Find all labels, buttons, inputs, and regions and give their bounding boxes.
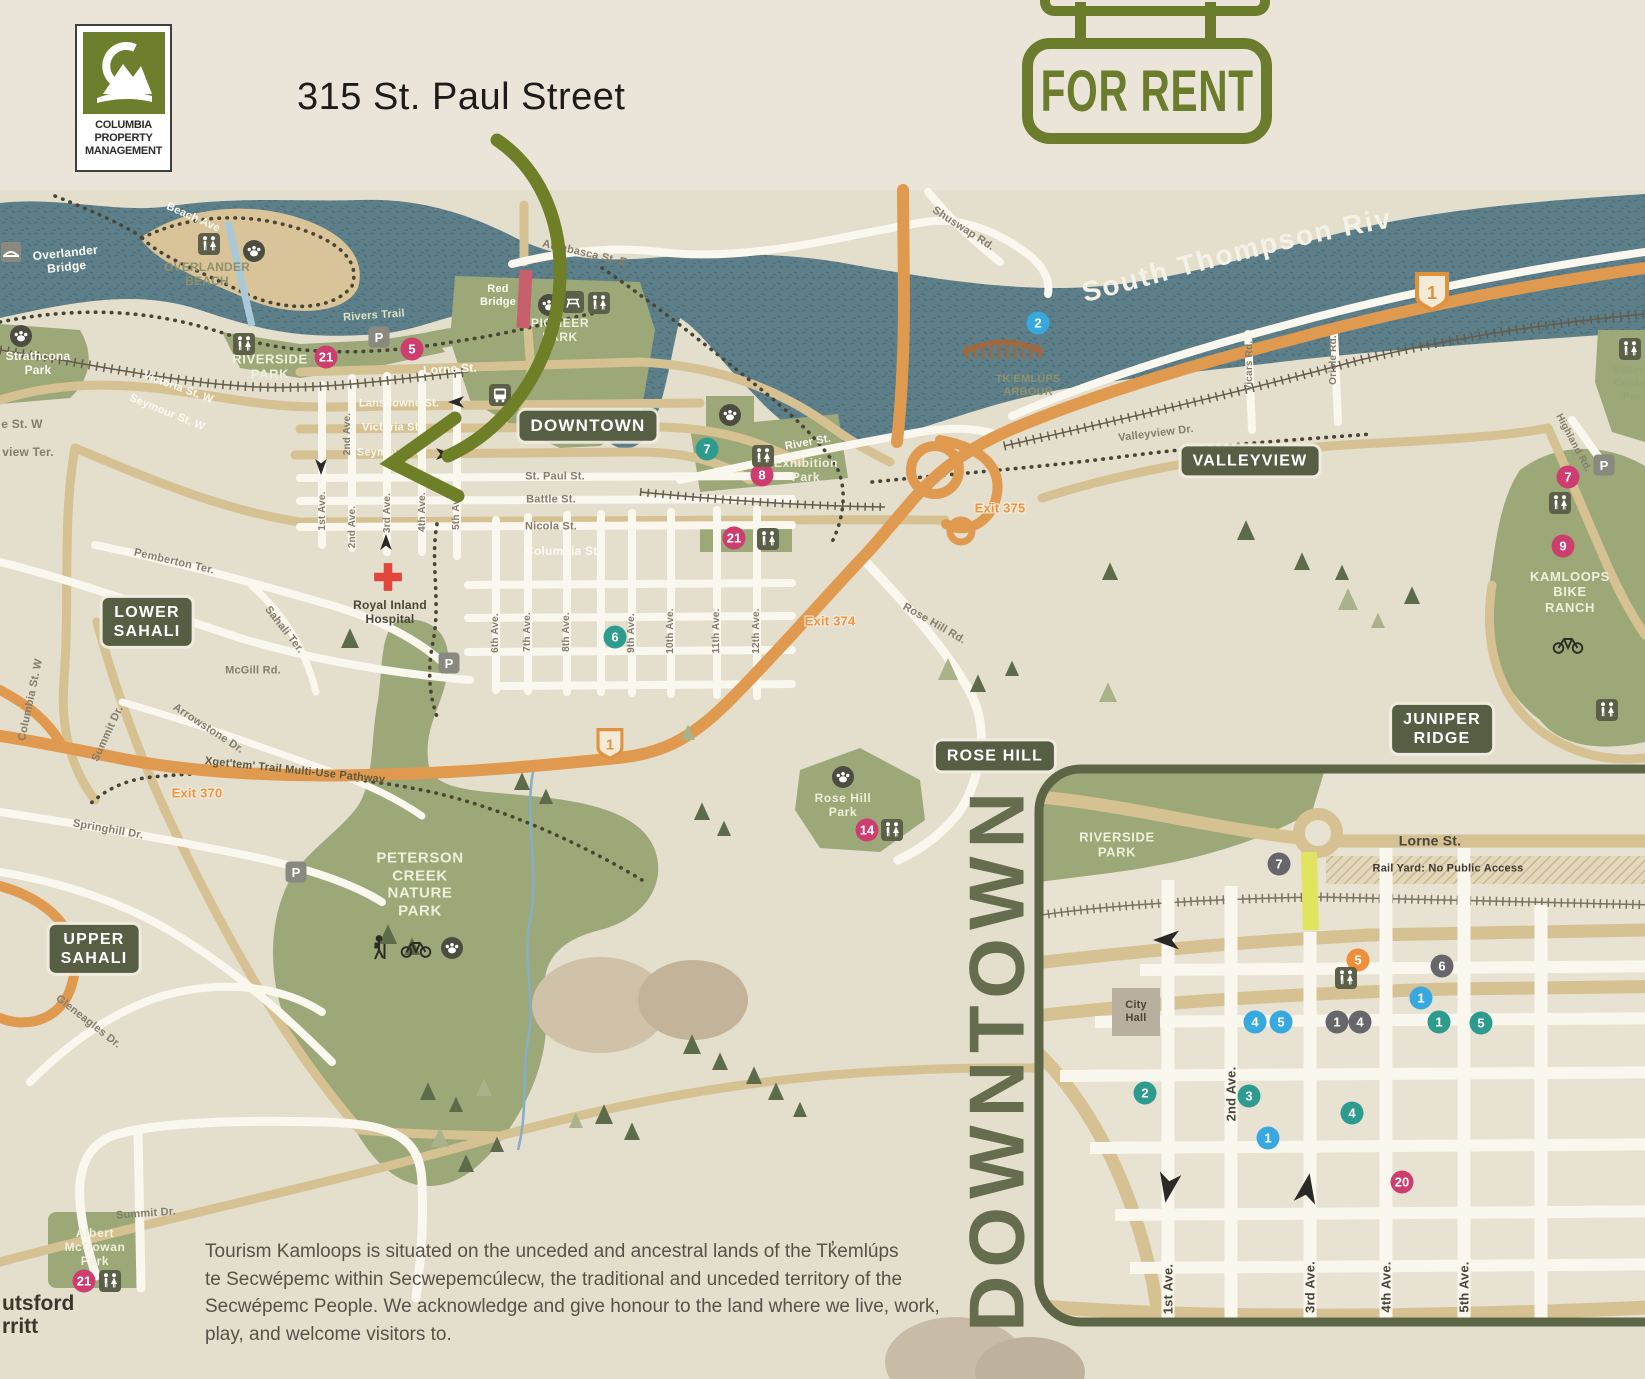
region-badge: VALLEYVIEW bbox=[1182, 446, 1319, 475]
land-acknowledgment: Tourism Kamloops is situated on the unce… bbox=[205, 1238, 940, 1348]
map-label: Pemberton Ter. bbox=[133, 546, 216, 577]
restroom-icon bbox=[1619, 338, 1641, 360]
map-label: view Ter. bbox=[2, 445, 54, 459]
logo-text-line1: COLUMBIA bbox=[77, 119, 170, 132]
map-label: PIONEER PARK bbox=[531, 316, 589, 344]
numbered-marker: 5 bbox=[401, 338, 424, 361]
paw-icon bbox=[441, 937, 464, 960]
direction-arrow bbox=[436, 446, 452, 462]
map-label: RIVERSIDE PARK bbox=[232, 352, 307, 383]
map-label: 3rd Ave. bbox=[382, 493, 394, 533]
map-label: Xget'tem' Trail Multi-Use Pathway bbox=[204, 755, 386, 787]
numbered-marker: 4 bbox=[1244, 1011, 1267, 1034]
numbered-marker: 5 bbox=[1470, 1012, 1493, 1035]
numbered-marker: 20 bbox=[1391, 1171, 1414, 1194]
restroom-icon bbox=[1549, 492, 1571, 514]
map-label: Summit Dr. bbox=[89, 704, 126, 764]
map-label: Rivers Trail bbox=[343, 307, 405, 324]
map-label: e St. W bbox=[1, 417, 42, 431]
map-label: Strathcona Park bbox=[6, 349, 71, 377]
map-label: Gleneagles Dr. bbox=[53, 992, 123, 1051]
map-label: Vicars Rd. bbox=[1244, 341, 1256, 392]
bus-icon bbox=[489, 384, 511, 406]
map-label: Valleyview Dr. bbox=[1118, 423, 1195, 445]
direction-arrow bbox=[313, 459, 329, 475]
map-overlay: Overlander BridgeBeach AveOVERLANDER BEA… bbox=[0, 0, 1645, 1379]
map-label: 5th Ave. bbox=[451, 490, 463, 530]
numbered-marker: 4 bbox=[1341, 1102, 1364, 1125]
map-label: River St. bbox=[784, 433, 832, 454]
map-label: Nicola St. bbox=[525, 521, 577, 534]
map-label: Exhibition Park bbox=[774, 456, 838, 484]
map-label: 1st Ave. bbox=[317, 491, 329, 530]
columbia-property-management-logo: COLUMBIA PROPERTY MANAGEMENT bbox=[75, 24, 172, 172]
map-label: Athabasca St. E. bbox=[541, 238, 631, 271]
region-badge: JUNIPER RIDGE bbox=[1392, 705, 1492, 753]
paw-icon bbox=[243, 240, 266, 263]
map-label: 9th Ave. bbox=[626, 613, 638, 653]
map-label: 2nd Ave. bbox=[1223, 1067, 1238, 1122]
numbered-marker: 6 bbox=[1431, 955, 1454, 978]
map-label: Oriole Rd. bbox=[1328, 335, 1340, 385]
svg-text:P: P bbox=[445, 656, 454, 671]
map-label: Royal Inland Hospital bbox=[353, 598, 427, 626]
map-label: Lorne St. bbox=[1399, 833, 1461, 850]
region-badge: ROSE HILL bbox=[936, 741, 1054, 770]
map-label: City Hall bbox=[1125, 999, 1147, 1025]
map-label: Arrowstone Dr. bbox=[170, 701, 246, 756]
region-badge: DOWNTOWN bbox=[519, 411, 656, 441]
numbered-marker: 21 bbox=[723, 527, 746, 550]
numbered-marker: 21 bbox=[315, 346, 338, 369]
bridge-icon bbox=[1, 242, 21, 262]
map-label: PETERSON CREEK NATURE PARK bbox=[376, 850, 463, 921]
numbered-marker: 9 bbox=[1552, 535, 1575, 558]
map-label: Victoria St. bbox=[362, 422, 422, 435]
map-label: 7th Ave. bbox=[522, 612, 534, 652]
map-label: Exit 374 bbox=[805, 613, 856, 628]
map-label: 2nd Ave. bbox=[347, 506, 359, 549]
direction-arrow bbox=[378, 534, 394, 550]
numbered-marker: 7 bbox=[1557, 466, 1580, 489]
numbered-marker: 1 bbox=[1428, 1011, 1451, 1034]
map-label: Red Bridge bbox=[480, 283, 516, 309]
map-label: 4th Ave. bbox=[417, 492, 429, 532]
parking-icon: P bbox=[286, 862, 307, 883]
bike-icon bbox=[400, 938, 432, 959]
map-label: Battle St. bbox=[526, 494, 576, 507]
map-label: Sahali Ter. bbox=[262, 604, 307, 656]
restroom-icon bbox=[1335, 967, 1357, 989]
map-label: Valleyv Center Par bbox=[1613, 365, 1645, 404]
map-label: Exit 375 bbox=[975, 500, 1026, 515]
map-label: Lorne St. bbox=[423, 361, 477, 378]
region-badge: UPPER SAHALI bbox=[50, 925, 139, 973]
numbered-marker: 3 bbox=[1238, 1085, 1261, 1108]
map-label: Rail Yard: No Public Access bbox=[1373, 863, 1524, 876]
region-badge: LOWER SAHALI bbox=[103, 598, 192, 646]
highway-1-shield: 1 bbox=[1415, 272, 1449, 312]
numbered-marker: 6 bbox=[604, 626, 627, 649]
svg-text:1: 1 bbox=[606, 738, 614, 754]
map-label: McGill Rd. bbox=[225, 665, 281, 678]
parking-icon: P bbox=[1594, 455, 1615, 476]
direction-arrow bbox=[1151, 1171, 1186, 1206]
map-label: 11th Ave. bbox=[711, 609, 723, 654]
numbered-marker: 4 bbox=[1349, 1011, 1372, 1034]
map-label: 4th Ave. bbox=[1378, 1261, 1393, 1312]
arbour-icon bbox=[959, 329, 1047, 365]
svg-text:P: P bbox=[1600, 458, 1609, 473]
cutoff-label-merritt: rritt bbox=[2, 1315, 38, 1339]
map-label: 2nd Ave. bbox=[342, 413, 354, 456]
map-label: 8th Ave. bbox=[561, 612, 573, 652]
logo-text-line3: MANAGEMENT bbox=[77, 145, 170, 158]
paw-icon bbox=[719, 404, 742, 427]
restroom-icon bbox=[588, 292, 610, 314]
map-label: Beach Ave bbox=[164, 200, 222, 235]
restroom-icon bbox=[757, 528, 779, 550]
numbered-marker: 1 bbox=[1410, 987, 1433, 1010]
restroom-icon bbox=[99, 1270, 121, 1292]
highway-1-shield: 1 bbox=[596, 728, 623, 760]
for-rent-sign: FOR RENT bbox=[1022, 38, 1272, 144]
restroom-icon bbox=[1596, 699, 1618, 721]
map-label: Albert McGowan Park bbox=[65, 1226, 126, 1268]
map-label: Columbia St. W bbox=[16, 658, 46, 742]
inset-downtown-title: DOWNTOWN bbox=[952, 784, 1043, 1332]
flyer-page: South Thompson River bbox=[0, 0, 1645, 1379]
map-label: 10th Ave. bbox=[665, 608, 677, 654]
numbered-marker: 7 bbox=[1268, 853, 1291, 876]
direction-arrow bbox=[448, 394, 464, 410]
paw-icon bbox=[538, 294, 561, 317]
sign-post-right bbox=[1205, 2, 1216, 40]
restroom-icon bbox=[233, 333, 255, 355]
numbered-marker: 14 bbox=[856, 819, 879, 842]
numbered-marker: 21 bbox=[73, 1270, 96, 1293]
map-label: St. Paul St. bbox=[525, 471, 585, 484]
map-label: RIVERSIDE PARK bbox=[1079, 830, 1154, 861]
bike-icon bbox=[1552, 634, 1584, 655]
restroom-icon bbox=[198, 233, 220, 255]
direction-arrow bbox=[1153, 927, 1179, 953]
map-label: Exit 370 bbox=[172, 785, 223, 800]
map-label: Highland Rd. bbox=[1553, 412, 1593, 474]
paw-icon bbox=[10, 325, 33, 348]
map-label: 1st Ave. bbox=[1160, 1264, 1175, 1315]
parking-icon: P bbox=[369, 327, 390, 348]
map-label: KAMLOOPS BIKE RANCH bbox=[1530, 569, 1610, 615]
paw-icon bbox=[832, 766, 855, 789]
cutoff-label-knutsford: utsford bbox=[2, 1292, 74, 1316]
svg-text:P: P bbox=[375, 330, 384, 345]
numbered-marker: 2 bbox=[1134, 1082, 1157, 1105]
map-label: Shuswap Rd. bbox=[930, 204, 997, 254]
sign-post-left bbox=[1075, 2, 1086, 40]
numbered-marker: 1 bbox=[1326, 1011, 1349, 1034]
svg-text:1: 1 bbox=[1427, 283, 1437, 303]
numbered-marker: 5 bbox=[1270, 1011, 1293, 1034]
picnic-icon bbox=[562, 291, 584, 313]
cross-icon bbox=[372, 561, 404, 593]
map-label: Seymour St. bbox=[357, 447, 423, 460]
map-label: OVERLANDER BEACH bbox=[164, 260, 250, 288]
map-label: Lansdowne St. bbox=[359, 398, 439, 411]
numbered-marker: 7 bbox=[696, 438, 719, 461]
map-label: 3rd Ave. bbox=[1302, 1261, 1317, 1313]
direction-arrow bbox=[1290, 1171, 1325, 1206]
parking-icon: P bbox=[439, 653, 460, 674]
for-rent-sign-text: FOR RENT bbox=[1040, 58, 1253, 125]
map-label: TK'EMLÚPS ARBOUR bbox=[996, 373, 1061, 399]
restroom-icon bbox=[881, 819, 903, 841]
map-label: Rose Hill Park bbox=[815, 791, 872, 819]
map-label: Overlander Bridge bbox=[32, 243, 100, 278]
hiker-icon bbox=[370, 935, 390, 961]
logo-monogram-icon bbox=[83, 32, 165, 114]
logo-text-line2: PROPERTY bbox=[77, 132, 170, 145]
map-label: Springhill Dr. bbox=[72, 817, 144, 842]
map-label: 12th Ave. bbox=[751, 608, 763, 654]
map-label: 5th Ave. bbox=[1456, 1261, 1471, 1312]
numbered-marker: 1 bbox=[1257, 1127, 1280, 1150]
map-label: 6th Ave. bbox=[490, 613, 502, 653]
restroom-icon bbox=[752, 445, 774, 467]
map-label: Rose Hill Rd. bbox=[900, 601, 967, 647]
svg-text:P: P bbox=[292, 865, 301, 880]
map-label: Summit Dr. bbox=[116, 1205, 177, 1222]
map-label: Columbia St. bbox=[525, 544, 601, 558]
address-title: 315 St. Paul Street bbox=[297, 76, 625, 119]
